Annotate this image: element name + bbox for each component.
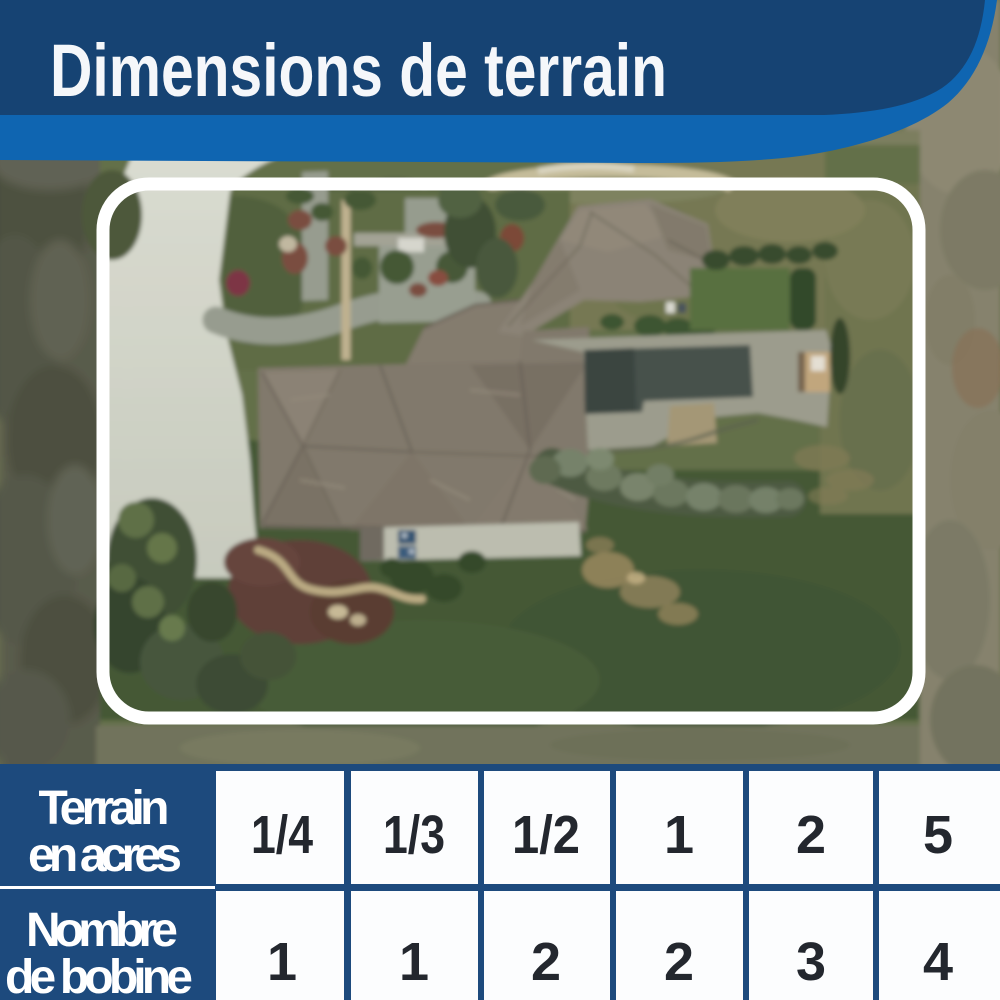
svg-text:2: 2 [531, 932, 561, 992]
svg-text:5: 5 [923, 805, 953, 865]
svg-text:Nombre: Nombre [26, 904, 178, 957]
svg-text:en acres: en acres [28, 829, 182, 882]
svg-text:4: 4 [923, 932, 953, 992]
svg-text:2: 2 [664, 932, 694, 992]
svg-text:2: 2 [796, 805, 826, 865]
svg-text:3: 3 [796, 932, 826, 992]
svg-text:Terrain: Terrain [39, 782, 170, 835]
svg-text:1: 1 [267, 932, 297, 992]
svg-text:1: 1 [399, 932, 429, 992]
svg-text:de bobine: de bobine [5, 951, 193, 1000]
svg-text:1: 1 [664, 805, 694, 865]
svg-text:1/3: 1/3 [383, 805, 445, 865]
svg-text:Dimensions de terrain: Dimensions de terrain [50, 29, 667, 112]
svg-text:1/2: 1/2 [512, 805, 580, 865]
svg-text:1/4: 1/4 [251, 805, 313, 865]
